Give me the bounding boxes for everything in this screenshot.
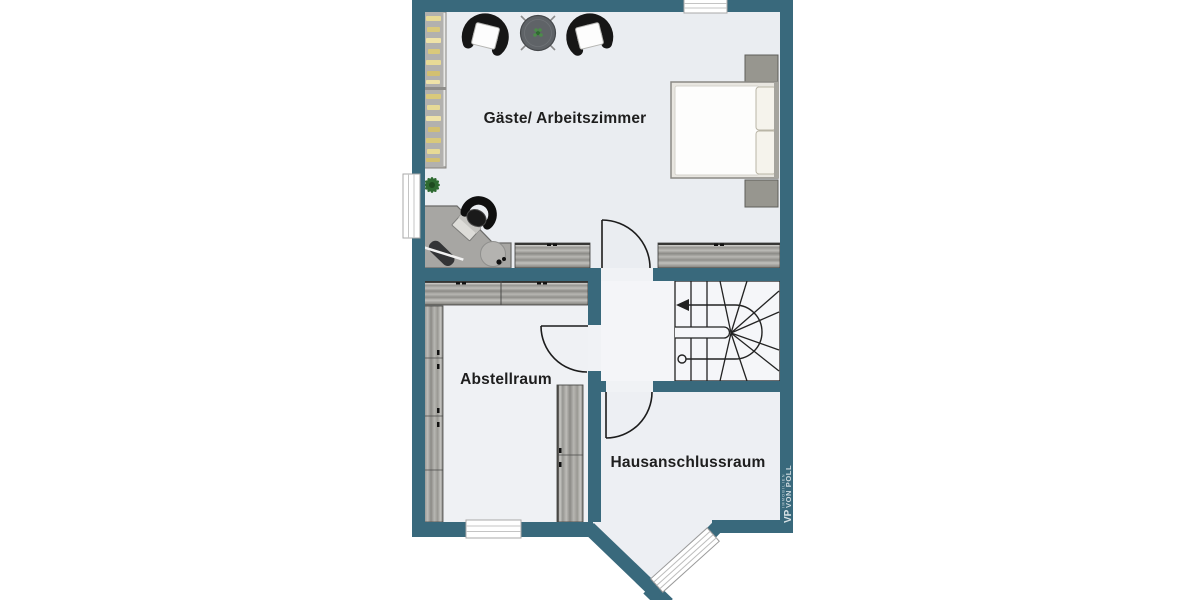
nightstand-top [745,55,778,82]
sideboard-right [658,243,780,268]
stool [481,242,506,267]
tall-cabinet-right [557,385,583,522]
wall-top [412,0,793,12]
sideboard-left [515,243,590,268]
headboard [774,82,779,178]
brand-name: VON POLL [784,465,793,508]
room-label-guest: Gäste/ Arbeitszimmer [484,110,647,127]
round-table [521,16,556,51]
wall-right [780,0,793,533]
pillow-top [756,87,776,130]
window-top [684,0,727,13]
nightstand-bottom [745,180,778,207]
wardrobe [417,281,588,305]
armchair-right [568,15,610,51]
wall-bottom-right [712,520,793,533]
brand-watermark: VP IMMOBILIEN VON POLL [781,465,795,523]
armchair-left [465,15,507,51]
bookshelf [423,11,446,168]
winder-staircase [675,281,780,381]
room-label-utility: Hausanschlussraum [610,454,765,471]
stair-handrail [675,327,730,338]
pillow-bottom [756,131,776,174]
floor-plan-drawing: Gäste/ Arbeitszimmer Abstellraum Hausans… [0,0,1200,600]
wall-stair-utility [653,381,780,392]
wall-vertical-lower [588,371,601,522]
brand-monogram: VP [783,509,794,523]
floor-plan: Gäste/ Arbeitszimmer Abstellraum Hausans… [0,0,1200,600]
wall-mid-left [412,268,601,281]
wall-vertical-upper [588,268,601,325]
window-bottom [466,520,521,538]
wall-stub [588,381,606,392]
duvet [675,86,759,175]
wall-mid-right [653,268,780,281]
window-left [403,174,420,238]
room-label-storage: Abstellraum [460,371,552,388]
